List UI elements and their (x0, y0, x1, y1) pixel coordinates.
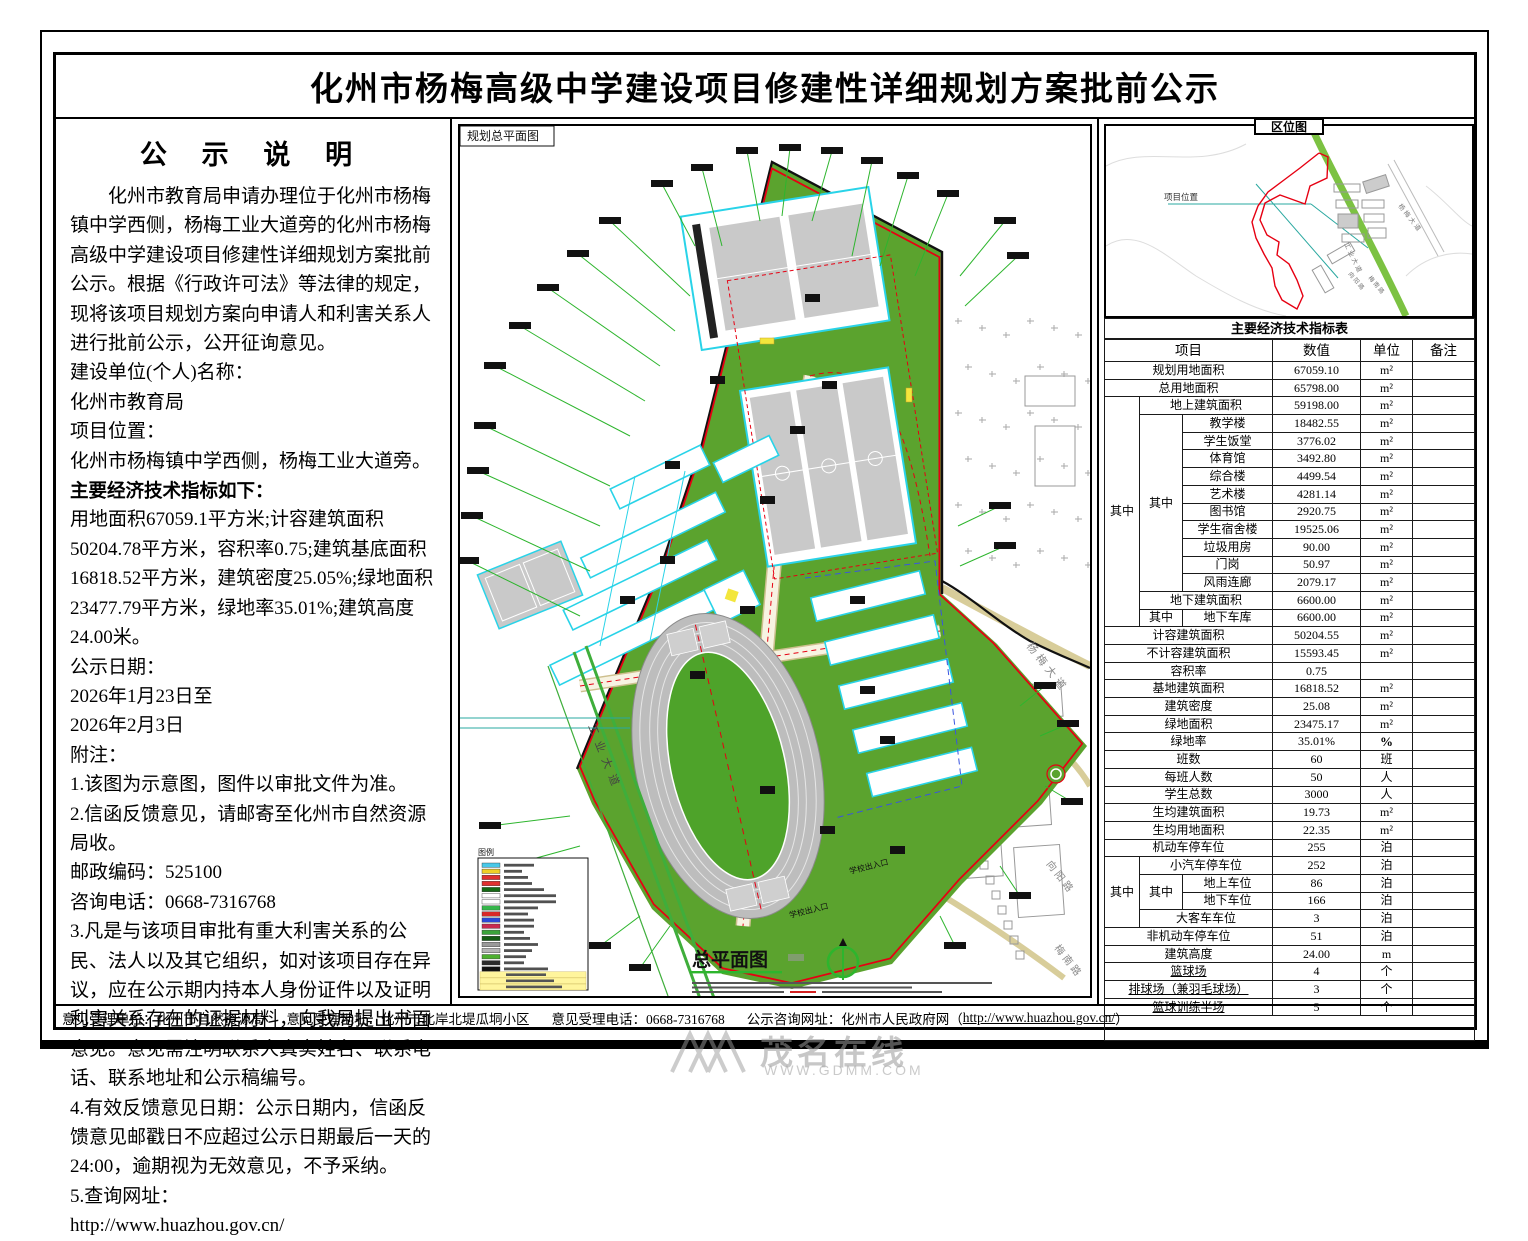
indicator-value: 3776.02 (1273, 432, 1361, 450)
notice-item-10: 1.该图为示意图，图件以审批文件为准。 (70, 770, 436, 799)
indicator-remark (1413, 468, 1475, 486)
indicator-unit: m² (1361, 379, 1413, 397)
locmap-project-label: 项目位置 (1164, 192, 1199, 202)
indicator-remark (1413, 945, 1475, 963)
indicator-unit: m² (1361, 503, 1413, 521)
indicator-label: 教学楼 (1183, 415, 1273, 433)
indicator-row: 篮球场4个 (1105, 963, 1475, 981)
footer-accept-unit: 意见受理单位：化州市自然资源局 (62, 1008, 265, 1028)
indicator-remark (1413, 733, 1475, 751)
notice-item-3: 化州市杨梅镇中学西侧，杨梅工业大道旁。 (70, 447, 436, 476)
indicator-unit: % (1361, 733, 1413, 751)
indicator-unit: m² (1361, 645, 1413, 663)
indicator-value: 252 (1273, 857, 1361, 875)
indicator-row: 大客车车位3泊 (1105, 910, 1475, 928)
locmap-site-boundary (1252, 153, 1328, 309)
notice-item-8: 2026年2月3日 (70, 711, 436, 740)
indicator-row: 其中地下车库6600.00m² (1105, 609, 1475, 627)
locmap-road-yangmei: 杨梅大道 (1396, 202, 1424, 234)
notice-item-15: 4.有效反馈意见日期：公示日期内，信函反馈意见邮戳日不应超过公示日期最后一天的2… (70, 1094, 436, 1182)
indicator-label: 学生宿舍楼 (1183, 521, 1273, 539)
indicator-unit: m² (1361, 415, 1413, 433)
indicator-unit: m² (1361, 450, 1413, 468)
indicator-value: 3 (1273, 910, 1361, 928)
indicator-label: 总用地面积 (1105, 379, 1273, 397)
col-header-unit: 单位 (1361, 339, 1413, 362)
indicator-unit: m² (1361, 485, 1413, 503)
indicator-value: 4499.54 (1273, 468, 1361, 486)
indicator-remark (1413, 981, 1475, 999)
indicator-remark (1413, 432, 1475, 450)
notice-item-12: 邮政编码：525100 (70, 858, 436, 887)
indicator-row: 班数60班 (1105, 751, 1475, 769)
indicator-value: 16818.52 (1273, 680, 1361, 698)
indicator-remark (1413, 963, 1475, 981)
indicator-row: 建筑密度25.08m² (1105, 698, 1475, 716)
indicator-remark (1413, 591, 1475, 609)
indicators-title: 主要经济技术指标表 (1105, 319, 1475, 340)
legend: 图例 (478, 847, 588, 990)
notice-url-link[interactable]: http://www.huazhou.gov.cn/ (70, 1215, 284, 1236)
indicator-unit: m² (1361, 609, 1413, 627)
indicator-unit: 个 (1361, 963, 1413, 981)
indicator-remark (1413, 786, 1475, 804)
indicator-value: 50204.55 (1273, 627, 1361, 645)
indicator-label: 体育馆 (1183, 450, 1273, 468)
legend-title: 图例 (478, 847, 494, 857)
indicator-remark (1413, 379, 1475, 397)
indicator-row: 其中地上车位86泊 (1105, 874, 1475, 892)
indicator-remark (1413, 609, 1475, 627)
group-cell: 其中 (1105, 397, 1140, 627)
indicator-label: 基地建筑面积 (1105, 680, 1273, 698)
indicator-row: 学生总数3000人 (1105, 786, 1475, 804)
notice-item-4: 主要经济技术指标如下： (70, 476, 436, 505)
indicator-value: 59198.00 (1273, 397, 1361, 415)
indicator-remark (1413, 538, 1475, 556)
indicator-label: 建筑密度 (1105, 698, 1273, 716)
indicator-row: 排球场（兼羽毛球场）3个 (1105, 981, 1475, 999)
indicator-remark (1413, 751, 1475, 769)
indicator-unit: m² (1361, 591, 1413, 609)
indicator-label: 地下车库 (1183, 609, 1273, 627)
indicator-label: 风雨连廊 (1183, 574, 1273, 592)
notice-item-2: 项目位置： (70, 417, 436, 446)
indicator-value: 65798.00 (1273, 379, 1361, 397)
col-header-value: 数值 (1273, 339, 1361, 362)
indicator-label: 地上车位 (1183, 874, 1273, 892)
location-map-svg: 项目位置 工业大道 杨梅大道 向阳路 梅南路 (1106, 126, 1472, 316)
indicator-label: 绿地率 (1105, 733, 1273, 751)
indicator-remark (1413, 680, 1475, 698)
indicator-value: 60 (1273, 751, 1361, 769)
indicator-unit: m² (1361, 362, 1413, 380)
location-map: 项目位置 工业大道 杨梅大道 向阳路 梅南路 (1104, 124, 1474, 318)
notice-item-13: 咨询电话：0668-7316768 (70, 888, 436, 917)
indicator-label: 建筑高度 (1105, 945, 1273, 963)
indicator-label: 机动车停车位 (1105, 839, 1273, 857)
indicator-label: 篮球场 (1105, 963, 1273, 981)
page-title: 化州市杨梅高级中学建设项目修建性详细规划方案批前公示 (310, 62, 1220, 110)
indicator-value: 0.75 (1273, 662, 1361, 680)
notice-panel: 公 示 说 明 化州市教育局申请办理位于化州市杨梅镇中学西侧，杨梅工业大道旁的化… (56, 119, 452, 1004)
indicator-unit: m² (1361, 468, 1413, 486)
indicator-unit: m² (1361, 538, 1413, 556)
indicator-unit: m² (1361, 804, 1413, 822)
indicator-label: 生均建筑面积 (1105, 804, 1273, 822)
indicator-value: 4 (1273, 963, 1361, 981)
indicator-unit (1361, 662, 1413, 680)
indicator-unit: m² (1361, 432, 1413, 450)
indicator-unit: m² (1361, 521, 1413, 539)
indicator-row: 生均用地面积22.35m² (1105, 821, 1475, 839)
indicator-value: 2079.17 (1273, 574, 1361, 592)
indicator-remark (1413, 645, 1475, 663)
indicator-label: 垃圾用房 (1183, 538, 1273, 556)
indicator-value: 6600.00 (1273, 591, 1361, 609)
indicator-label: 生均用地面积 (1105, 821, 1273, 839)
indicator-label: 每班人数 (1105, 768, 1273, 786)
indicator-label: 综合楼 (1183, 468, 1273, 486)
indicator-row: 规划用地面积67059.10m² (1105, 362, 1475, 380)
indicator-value: 3492.80 (1273, 450, 1361, 468)
indicator-value: 24.00 (1273, 945, 1361, 963)
indicator-unit: 泊 (1361, 892, 1413, 910)
indicator-remark (1413, 362, 1475, 380)
notice-item-11: 2.信函反馈意见，请邮寄至化州市自然资源局收。 (70, 800, 436, 859)
indicator-remark (1413, 910, 1475, 928)
indicator-remark (1413, 450, 1475, 468)
indicator-unit: 人 (1361, 768, 1413, 786)
indicator-row: 其中地上建筑面积59198.00m² (1105, 397, 1475, 415)
indicator-value: 51 (1273, 928, 1361, 946)
footer-website-link[interactable]: http://www.huazhou.gov.cn/ (963, 1010, 1115, 1026)
indicator-label: 容积率 (1105, 662, 1273, 680)
indicator-unit: m² (1361, 574, 1413, 592)
indicator-value: 23475.17 (1273, 715, 1361, 733)
indicator-unit: m² (1361, 397, 1413, 415)
location-map-title: 区位图 (1254, 118, 1324, 135)
indicator-remark (1413, 768, 1475, 786)
indicator-remark (1413, 804, 1475, 822)
indicator-unit: m² (1361, 715, 1413, 733)
indicator-label: 小汽车停车位 (1140, 857, 1273, 875)
indicator-label: 大客车车位 (1140, 910, 1273, 928)
indicator-label: 学生总数 (1105, 786, 1273, 804)
indicator-remark (1413, 397, 1475, 415)
indicator-value: 50 (1273, 768, 1361, 786)
title-row: 化州市杨梅高级中学建设项目修建性详细规划方案批前公示 (56, 55, 1474, 119)
indicator-value: 3 (1273, 981, 1361, 999)
elevation-marks (955, 318, 1090, 568)
notice-item-0: 建设单位(个人)名称： (70, 358, 436, 387)
indicator-remark (1413, 857, 1475, 875)
plan-notes (692, 982, 992, 993)
locmap-road-gongye: 工业大道 (1342, 241, 1365, 276)
indicator-remark (1413, 503, 1475, 521)
indicator-row: 基地建筑面积16818.52m² (1105, 680, 1475, 698)
group-cell: 其中 (1140, 415, 1183, 592)
indicator-unit: m² (1361, 627, 1413, 645)
indicator-unit: 泊 (1361, 839, 1413, 857)
indicator-value: 15593.45 (1273, 645, 1361, 663)
indicator-row: 总用地面积65798.00m² (1105, 379, 1475, 397)
indicator-label: 绿地面积 (1105, 715, 1273, 733)
indicator-value: 22.35 (1273, 821, 1361, 839)
watermark-sub: WWW.GDMM.COM (764, 1062, 924, 1078)
indicator-row: 生均建筑面积19.73m² (1105, 804, 1475, 822)
indicator-value: 4281.14 (1273, 485, 1361, 503)
indicator-value: 2920.75 (1273, 503, 1361, 521)
indicator-value: 19.73 (1273, 804, 1361, 822)
indicator-label: 地下建筑面积 (1140, 591, 1273, 609)
indicator-remark (1413, 821, 1475, 839)
notice-item-17[interactable]: http://www.huazhou.gov.cn/ (70, 1211, 436, 1240)
indicator-value: 90.00 (1273, 538, 1361, 556)
indicators-table: 主要经济技术指标表项目数值单位备注规划用地面积67059.10m²总用地面积65… (1104, 318, 1475, 1041)
indicator-remark (1413, 521, 1475, 539)
indicator-remark (1413, 662, 1475, 680)
indicator-label: 艺术楼 (1183, 485, 1273, 503)
site-plan-map: 工业大道 杨梅大道 向阳路 梅南路 学校出入口 学校出入口 图例 总平面图 规 (458, 124, 1092, 998)
col-header-remark: 备注 (1413, 339, 1475, 362)
indicator-remark (1413, 874, 1475, 892)
indicator-value: 19525.06 (1273, 521, 1361, 539)
indicator-unit: 个 (1361, 981, 1413, 999)
group-cell: 其中 (1105, 857, 1140, 928)
indicator-remark (1413, 715, 1475, 733)
indicator-row: 地下建筑面积6600.00m² (1105, 591, 1475, 609)
indicator-label: 计容建筑面积 (1105, 627, 1273, 645)
indicator-unit: m² (1361, 556, 1413, 574)
footer-accept-address: 意见受理地址：化州市北岸北堤瓜垌小区 (287, 1008, 530, 1028)
indicator-value: 18482.55 (1273, 415, 1361, 433)
notice-item-16: 5.查询网址： (70, 1182, 436, 1211)
indicator-label: 班数 (1105, 751, 1273, 769)
indicator-remark (1413, 485, 1475, 503)
locmap-diagonal-road (1388, 160, 1444, 256)
indicator-row: 其中教学楼18482.55m² (1105, 415, 1475, 433)
indicator-unit: 泊 (1361, 857, 1413, 875)
site-plan-svg: 工业大道 杨梅大道 向阳路 梅南路 学校出入口 学校出入口 图例 总平面图 规 (460, 126, 1090, 996)
indicator-row: 绿地面积23475.17m² (1105, 715, 1475, 733)
indicator-unit: 泊 (1361, 928, 1413, 946)
notice-item-9: 附注： (70, 741, 436, 770)
indicator-row: 机动车停车位255泊 (1105, 839, 1475, 857)
indicator-value: 3000 (1273, 786, 1361, 804)
indicator-label: 图书馆 (1183, 503, 1273, 521)
map-corner-label: 规划总平面图 (460, 126, 554, 146)
indicator-value: 166 (1273, 892, 1361, 910)
indicator-value: 255 (1273, 839, 1361, 857)
indicator-label: 不计容建筑面积 (1105, 645, 1273, 663)
indicator-value: 6600.00 (1273, 609, 1361, 627)
indicator-remark (1413, 415, 1475, 433)
indicator-label: 学生饭堂 (1183, 432, 1273, 450)
indicator-row: 非机动车停车位51泊 (1105, 928, 1475, 946)
notice-item-6: 公示日期： (70, 653, 436, 682)
indicator-label: 排球场（兼羽毛球场） (1105, 981, 1273, 999)
notice-item-7: 2026年1月23日至 (70, 682, 436, 711)
footer-website-prefix: 公示咨询网址：化州市人民政府网（ (747, 1008, 963, 1028)
indicator-unit: 人 (1361, 786, 1413, 804)
indicator-unit: m² (1361, 698, 1413, 716)
notice-item-5: 用地面积67059.1平方米;计容建筑面积50204.78平方米，容积率0.75… (70, 505, 436, 652)
group-cell: 其中 (1140, 874, 1183, 909)
footer-website-suffix: ） (1115, 1008, 1129, 1028)
notice-paragraph: 化州市教育局申请办理位于化州市杨梅镇中学西侧，杨梅工业大道旁的化州市杨梅高级中学… (70, 182, 436, 358)
indicator-label: 地下车位 (1183, 892, 1273, 910)
indicator-value: 50.97 (1273, 556, 1361, 574)
indicator-remark (1413, 556, 1475, 574)
notice-heading: 公 示 说 明 (70, 133, 436, 172)
indicator-label: 规划用地面积 (1105, 362, 1273, 380)
indicator-value: 25.08 (1273, 698, 1361, 716)
indicator-label: 门岗 (1183, 556, 1273, 574)
indicator-value: 67059.10 (1273, 362, 1361, 380)
plan-title: 总平面图 (692, 948, 768, 971)
svg-text:规划总平面图: 规划总平面图 (467, 128, 539, 143)
indicator-remark (1413, 928, 1475, 946)
indicator-remark (1413, 627, 1475, 645)
indicator-remark (1413, 892, 1475, 910)
indicator-remark (1413, 839, 1475, 857)
indicator-remark (1413, 698, 1475, 716)
indicator-value: 35.01% (1273, 733, 1361, 751)
indicator-row: 建筑高度24.00m (1105, 945, 1475, 963)
col-header-item: 项目 (1105, 339, 1273, 362)
footer: 意见受理单位：化州市自然资源局 意见受理地址：化州市北岸北堤瓜垌小区 意见受理电… (56, 1004, 1474, 1030)
roundabout (1047, 765, 1065, 783)
indicator-label: 非机动车停车位 (1105, 928, 1273, 946)
notice-item-1: 化州市教育局 (70, 388, 436, 417)
group-cell: 其中 (1140, 609, 1183, 627)
indicator-value: 86 (1273, 874, 1361, 892)
indicator-row: 容积率0.75 (1105, 662, 1475, 680)
indicator-label: 地上建筑面积 (1140, 397, 1273, 415)
indicator-row: 绿地率35.01%% (1105, 733, 1475, 751)
indicator-row: 不计容建筑面积15593.45m² (1105, 645, 1475, 663)
indicator-unit: m (1361, 945, 1413, 963)
indicator-unit: m² (1361, 680, 1413, 698)
indicator-unit: 泊 (1361, 874, 1413, 892)
indicator-row: 其中小汽车停车位252泊 (1105, 857, 1475, 875)
indicator-row: 每班人数50人 (1105, 768, 1475, 786)
indicator-unit: m² (1361, 821, 1413, 839)
indicator-unit: 班 (1361, 751, 1413, 769)
indicator-row: 计容建筑面积50204.55m² (1105, 627, 1475, 645)
footer-accept-phone: 意见受理电话：0668-7316768 (552, 1008, 725, 1028)
indicator-unit: 泊 (1361, 910, 1413, 928)
notice-items: 建设单位(个人)名称：化州市教育局项目位置：化州市杨梅镇中学西侧，杨梅工业大道旁… (70, 358, 436, 1240)
indicators-table-wrap: 主要经济技术指标表项目数值单位备注规划用地面积67059.10m²总用地面积65… (1104, 318, 1474, 1041)
indicator-remark (1413, 574, 1475, 592)
